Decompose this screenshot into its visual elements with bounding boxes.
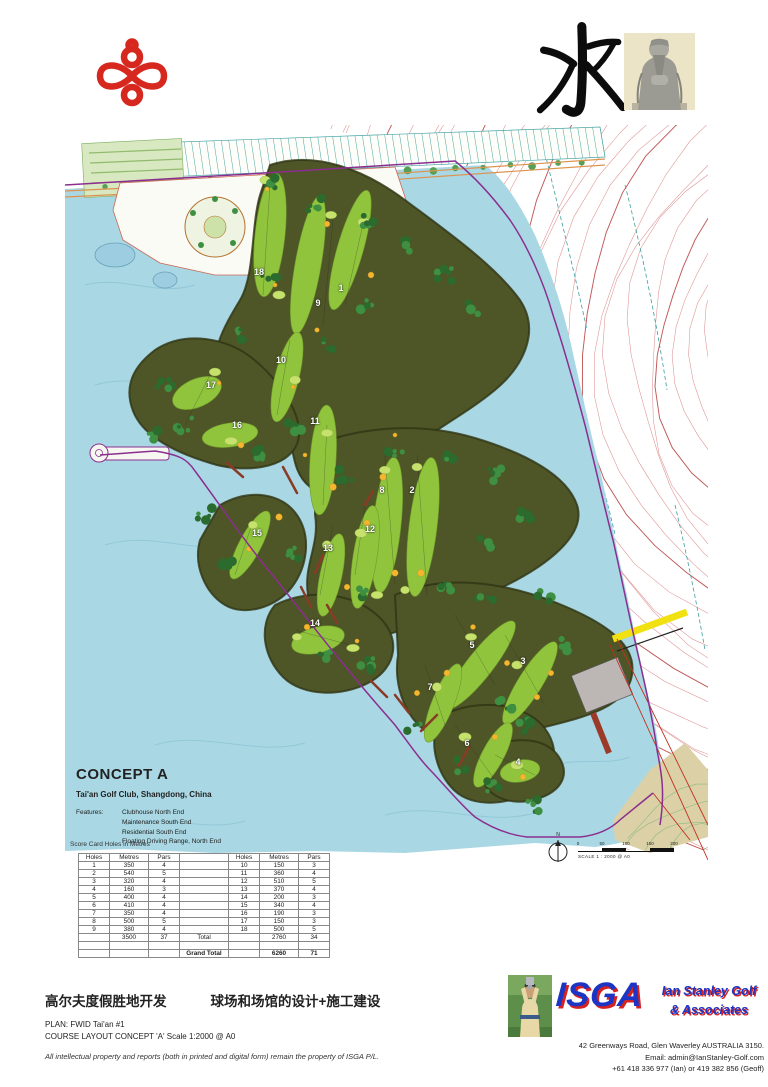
hole-13-marker: 13	[323, 543, 333, 553]
hole-3-marker: 3	[520, 656, 525, 666]
chinese-heading-left: 高尔夫度假胜地开发	[45, 994, 167, 1009]
hole-6-marker: 6	[464, 738, 469, 748]
hole-15-marker: 15	[252, 528, 262, 538]
scorecard-row: 54004142003	[79, 894, 330, 902]
hole-1-marker: 1	[338, 283, 343, 293]
hole-16-marker: 16	[232, 420, 242, 430]
scale-text: SCALE 1 : 2000 @ A0	[578, 854, 678, 859]
isga-name-line2: & Associates	[654, 1001, 764, 1020]
hole-17-marker: 17	[206, 380, 216, 390]
hole-2-marker: 2	[409, 485, 414, 495]
concept-title: CONCEPT A	[76, 766, 326, 783]
isga-acronym: ISGA	[555, 976, 645, 1015]
hole-14-marker: 14	[310, 618, 320, 628]
feature-item: Residential South End	[122, 828, 221, 838]
scale-tick: 150	[646, 841, 654, 846]
hole-4-marker: 4	[515, 757, 520, 767]
golfer-photo	[508, 975, 552, 1037]
disclaimer: All intellectual property and reports (b…	[45, 1052, 465, 1061]
scale-bar-graphic	[578, 847, 674, 852]
feature-item: Clubhouse North End	[122, 808, 221, 818]
hole-8-marker: 8	[379, 485, 384, 495]
footer-left: 高尔夫度假胜地开发球场和场馆的设计+施工建设 PLAN: FWID Tai'an…	[45, 990, 465, 1061]
concept-subtitle: Tai'an Golf Club, Shangdong, China	[76, 790, 326, 799]
hole-5-marker: 5	[469, 640, 474, 650]
scorecard-body: 1350410150325405113604332041251054160313…	[79, 862, 330, 958]
north-arrow: N	[546, 833, 570, 865]
scorecard-row: 85005171503	[79, 918, 330, 926]
scorecard-note: Score Card Holes in Metres	[70, 841, 150, 848]
chinese-heading: 高尔夫度假胜地开发球场和场馆的设计+施工建设	[45, 990, 465, 1010]
feature-item: Maintenance South End	[122, 818, 221, 828]
north-arrow-icon	[546, 838, 570, 864]
plan-sheet: 水	[0, 0, 768, 1087]
isga-email: Email: admin@IanStanley-Golf.com	[502, 1052, 764, 1064]
chinese-heading-right: 球场和场馆的设计+施工建设	[211, 994, 381, 1009]
scorecard-row	[79, 942, 330, 950]
hole-7-marker: 7	[427, 682, 432, 692]
scorecard-row: 13504101503	[79, 862, 330, 870]
scorecard-row: 93804185005	[79, 926, 330, 934]
scale-tick: 50	[599, 841, 604, 846]
scale-tick: 0	[577, 841, 580, 846]
hole-12-marker: 12	[365, 524, 375, 534]
scale-bar: 050100150200 m SCALE 1 : 2000 @ A0	[578, 841, 678, 859]
scorecard-row: 41603133704	[79, 886, 330, 894]
water-character: 水	[0, 0, 1, 1]
scorecard-row: 350037Total276034	[79, 934, 330, 942]
isga-address-block: 42 Greenways Road, Glen Waverley AUSTRAL…	[502, 1040, 764, 1075]
isga-address: 42 Greenways Road, Glen Waverley AUSTRAL…	[502, 1040, 764, 1052]
chinese-knot-logo	[84, 34, 180, 118]
isga-name: Ian Stanley Golf & Associates	[654, 982, 764, 1020]
hole-10-marker: 10	[276, 355, 286, 365]
scorecard-row: 73504161903	[79, 910, 330, 918]
scorecard-header: HolesMetresParsHolesMetresPars	[79, 854, 330, 862]
water-character-glyph	[532, 22, 628, 122]
confucius-statue-photo	[624, 33, 695, 110]
scorecard-table: HolesMetresParsHolesMetresPars 135041015…	[78, 853, 330, 958]
isga-name-line1: Ian Stanley Golf	[654, 982, 764, 1001]
isga-phone: +61 418 336 977 (Ian) or 419 382 856 (Ge…	[502, 1063, 764, 1075]
hole-18-marker: 18	[254, 267, 264, 277]
concept-block: CONCEPT A Tai'an Golf Club, Shangdong, C…	[76, 766, 326, 847]
layout-line: COURSE LAYOUT CONCEPT 'A' Scale 1:2000 @…	[45, 1031, 465, 1043]
scorecard-row: 33204125105	[79, 878, 330, 886]
hole-11-marker: 11	[310, 416, 320, 426]
plan-line: PLAN: FWID Tai'an #1	[45, 1019, 465, 1031]
scorecard-row: 25405113604	[79, 870, 330, 878]
hole-9-marker: 9	[315, 298, 320, 308]
scale-tick: 100	[622, 841, 630, 846]
scorecard-row: 64104153404	[79, 902, 330, 910]
scorecard-row: Grand Total626071	[79, 950, 330, 958]
